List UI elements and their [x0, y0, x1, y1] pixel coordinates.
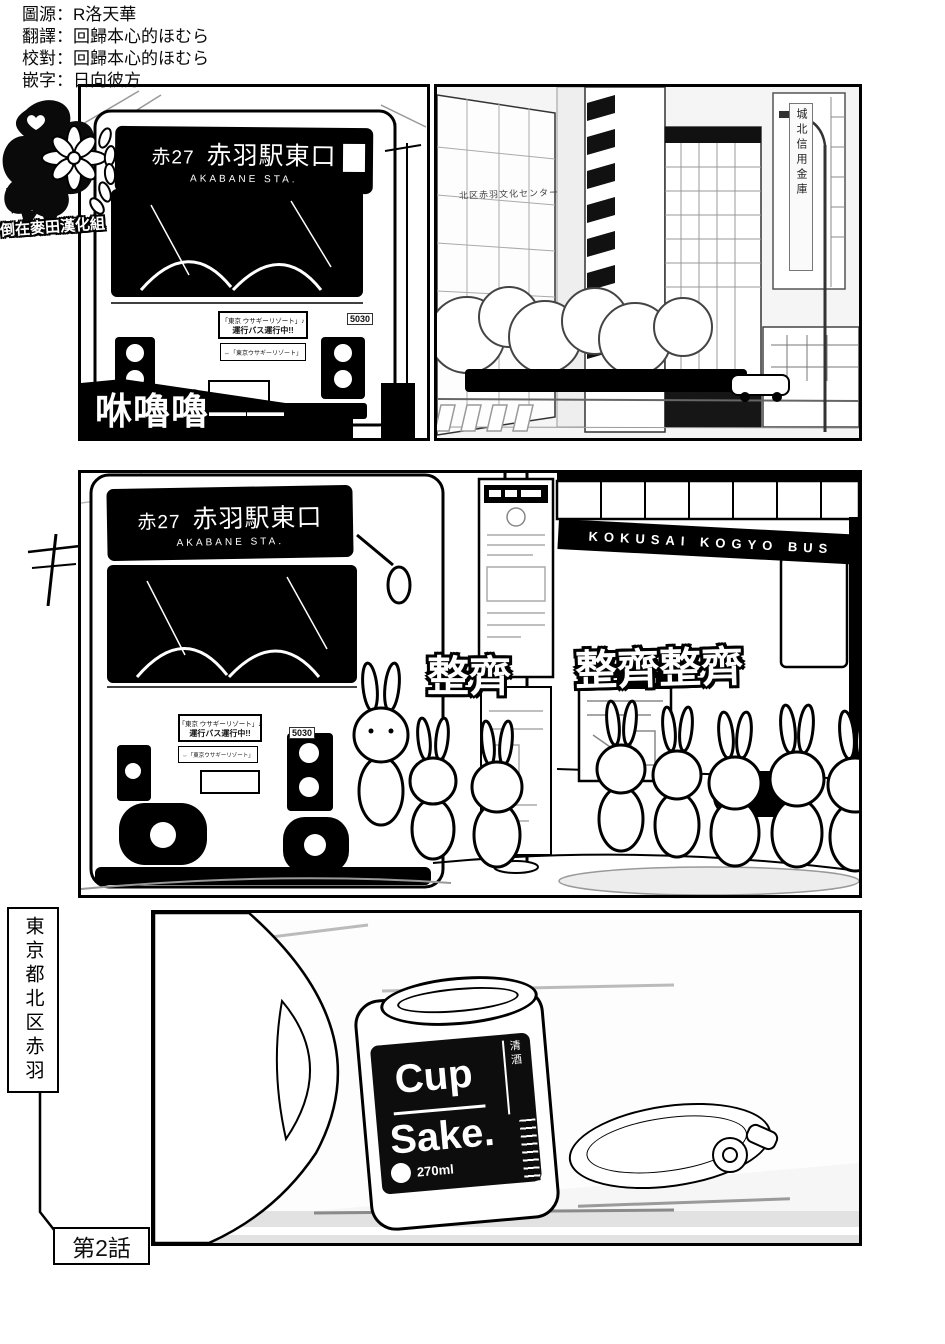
- credit-line-translation: 翻譯：回歸本心的ほむら: [22, 26, 209, 48]
- panel-bus-front: 赤27 赤羽駅東口 AKABANE STA. 「東京 ウサギーリゾート」♪ 運行…: [78, 84, 430, 441]
- manga-page: 圖源：R洛天華 翻譯：回歸本心的ほむら 校對：回歸本心的ほむら 嵌字：日向彼方: [0, 0, 945, 1344]
- tour-banner: 「東京 ウサギーリゾート」♪ 運行バス運行中!!: [178, 714, 262, 742]
- side-bus-windows: [557, 481, 859, 519]
- platform: [559, 867, 859, 895]
- location-caption-box: 東京都北区赤羽: [7, 907, 59, 1093]
- sign-end-light: [343, 144, 365, 172]
- front-bus-plate: [201, 771, 259, 793]
- mid-building-roof: [665, 127, 761, 143]
- chapter-box: 第2話: [53, 1227, 150, 1265]
- tour-banner-line2: 運行バス運行中!!: [189, 728, 250, 739]
- credit-line-proofread: 校對：回歸本心的ほむら: [22, 48, 209, 70]
- sfx-neat-left: 整齊: [427, 643, 511, 704]
- destination-english: AKABANE STA.: [176, 536, 284, 549]
- route-plate: ⇔「東京ウサギーリゾート」: [178, 746, 258, 763]
- scanlation-logo: 倒在麥田漢化組: [2, 96, 120, 256]
- front-bus-shadow: [95, 867, 431, 885]
- bank-vertical-sign: 城北信用金庫: [789, 103, 813, 271]
- destination-row: 赤27 赤羽駅東口: [151, 135, 336, 173]
- destination-sign: 赤27 赤羽駅東口 AKABANE STA.: [115, 126, 374, 194]
- tour-banner-line1: 「東京 ウサギーリゾート」♪: [178, 718, 261, 728]
- side-bus-door-window: [781, 557, 847, 667]
- credit-line-typeset: 嵌字：日向彼方: [22, 70, 209, 92]
- can-label: Cup Sake. 清酒 270ml: [370, 1032, 542, 1194]
- destination-sign: 赤27 赤羽駅東口 AKABANE STA.: [106, 485, 353, 561]
- credits-block: 圖源：R洛天華 翻譯：回歸本心的ほむら 校對：回歸本心的ほむら 嵌字：日向彼方: [22, 4, 209, 92]
- can-volume: 270ml: [416, 1161, 454, 1179]
- can-sake-type: 清酒: [506, 1039, 524, 1068]
- bus-fleet-number: 5030: [289, 727, 315, 739]
- sfx-engine-rumble: 咻嚕嚕——: [95, 381, 285, 435]
- location-caption-text: 東京都北区赤羽: [20, 916, 47, 1084]
- route-number: 赤27: [151, 142, 194, 169]
- destination-english: AKABANE STA.: [190, 173, 298, 185]
- can-brand-top: Cup: [393, 1052, 474, 1104]
- front-bus-windshield: [107, 565, 357, 683]
- tour-banner: 「東京 ウサギーリゾート」♪ 運行バス運行中!!: [218, 311, 308, 339]
- route-number: 赤27: [137, 506, 181, 534]
- pull-tab-ring: [712, 1137, 748, 1173]
- route-plate: ⇔「東京ウサギーリゾート」: [220, 343, 306, 361]
- bus-fleet-number: 5030: [347, 313, 373, 325]
- can-rim-inner: [396, 983, 520, 1018]
- destination-text: 赤羽駅東口: [206, 135, 336, 172]
- tour-banner-line2: 運行バス運行中!!: [232, 325, 293, 336]
- destination-row: 赤27 赤羽駅東口: [137, 497, 323, 536]
- caption-connector-line: [32, 1090, 92, 1250]
- pull-tab-ring-hole: [722, 1147, 738, 1163]
- panel-cup-sake: Cup Sake. 清酒 270ml: [151, 910, 862, 1246]
- panel-street-scene: 北区赤羽文化センター 城北信用金庫: [434, 84, 862, 441]
- margin-utility-pole: [26, 534, 82, 606]
- tour-banner-line1: 「東京 ウサギーリゾート」♪: [221, 315, 304, 325]
- chapter-label: 第2話: [72, 1229, 131, 1263]
- can-rice-badge: [390, 1162, 412, 1184]
- table-edge-highlight: [154, 1227, 859, 1235]
- destination-text: 赤羽駅東口: [192, 497, 323, 535]
- can-brand-bottom: Sake.: [388, 1110, 496, 1164]
- credit-line-source: 圖源：R洛天華: [22, 4, 209, 26]
- hedge: [465, 369, 747, 392]
- panel-bus-stop: KOKUSAI KOGYO BUS 赤27 赤羽駅東口 AKABANE STA.…: [78, 470, 862, 898]
- sfx-neat-right: 整齊整齊: [574, 633, 744, 698]
